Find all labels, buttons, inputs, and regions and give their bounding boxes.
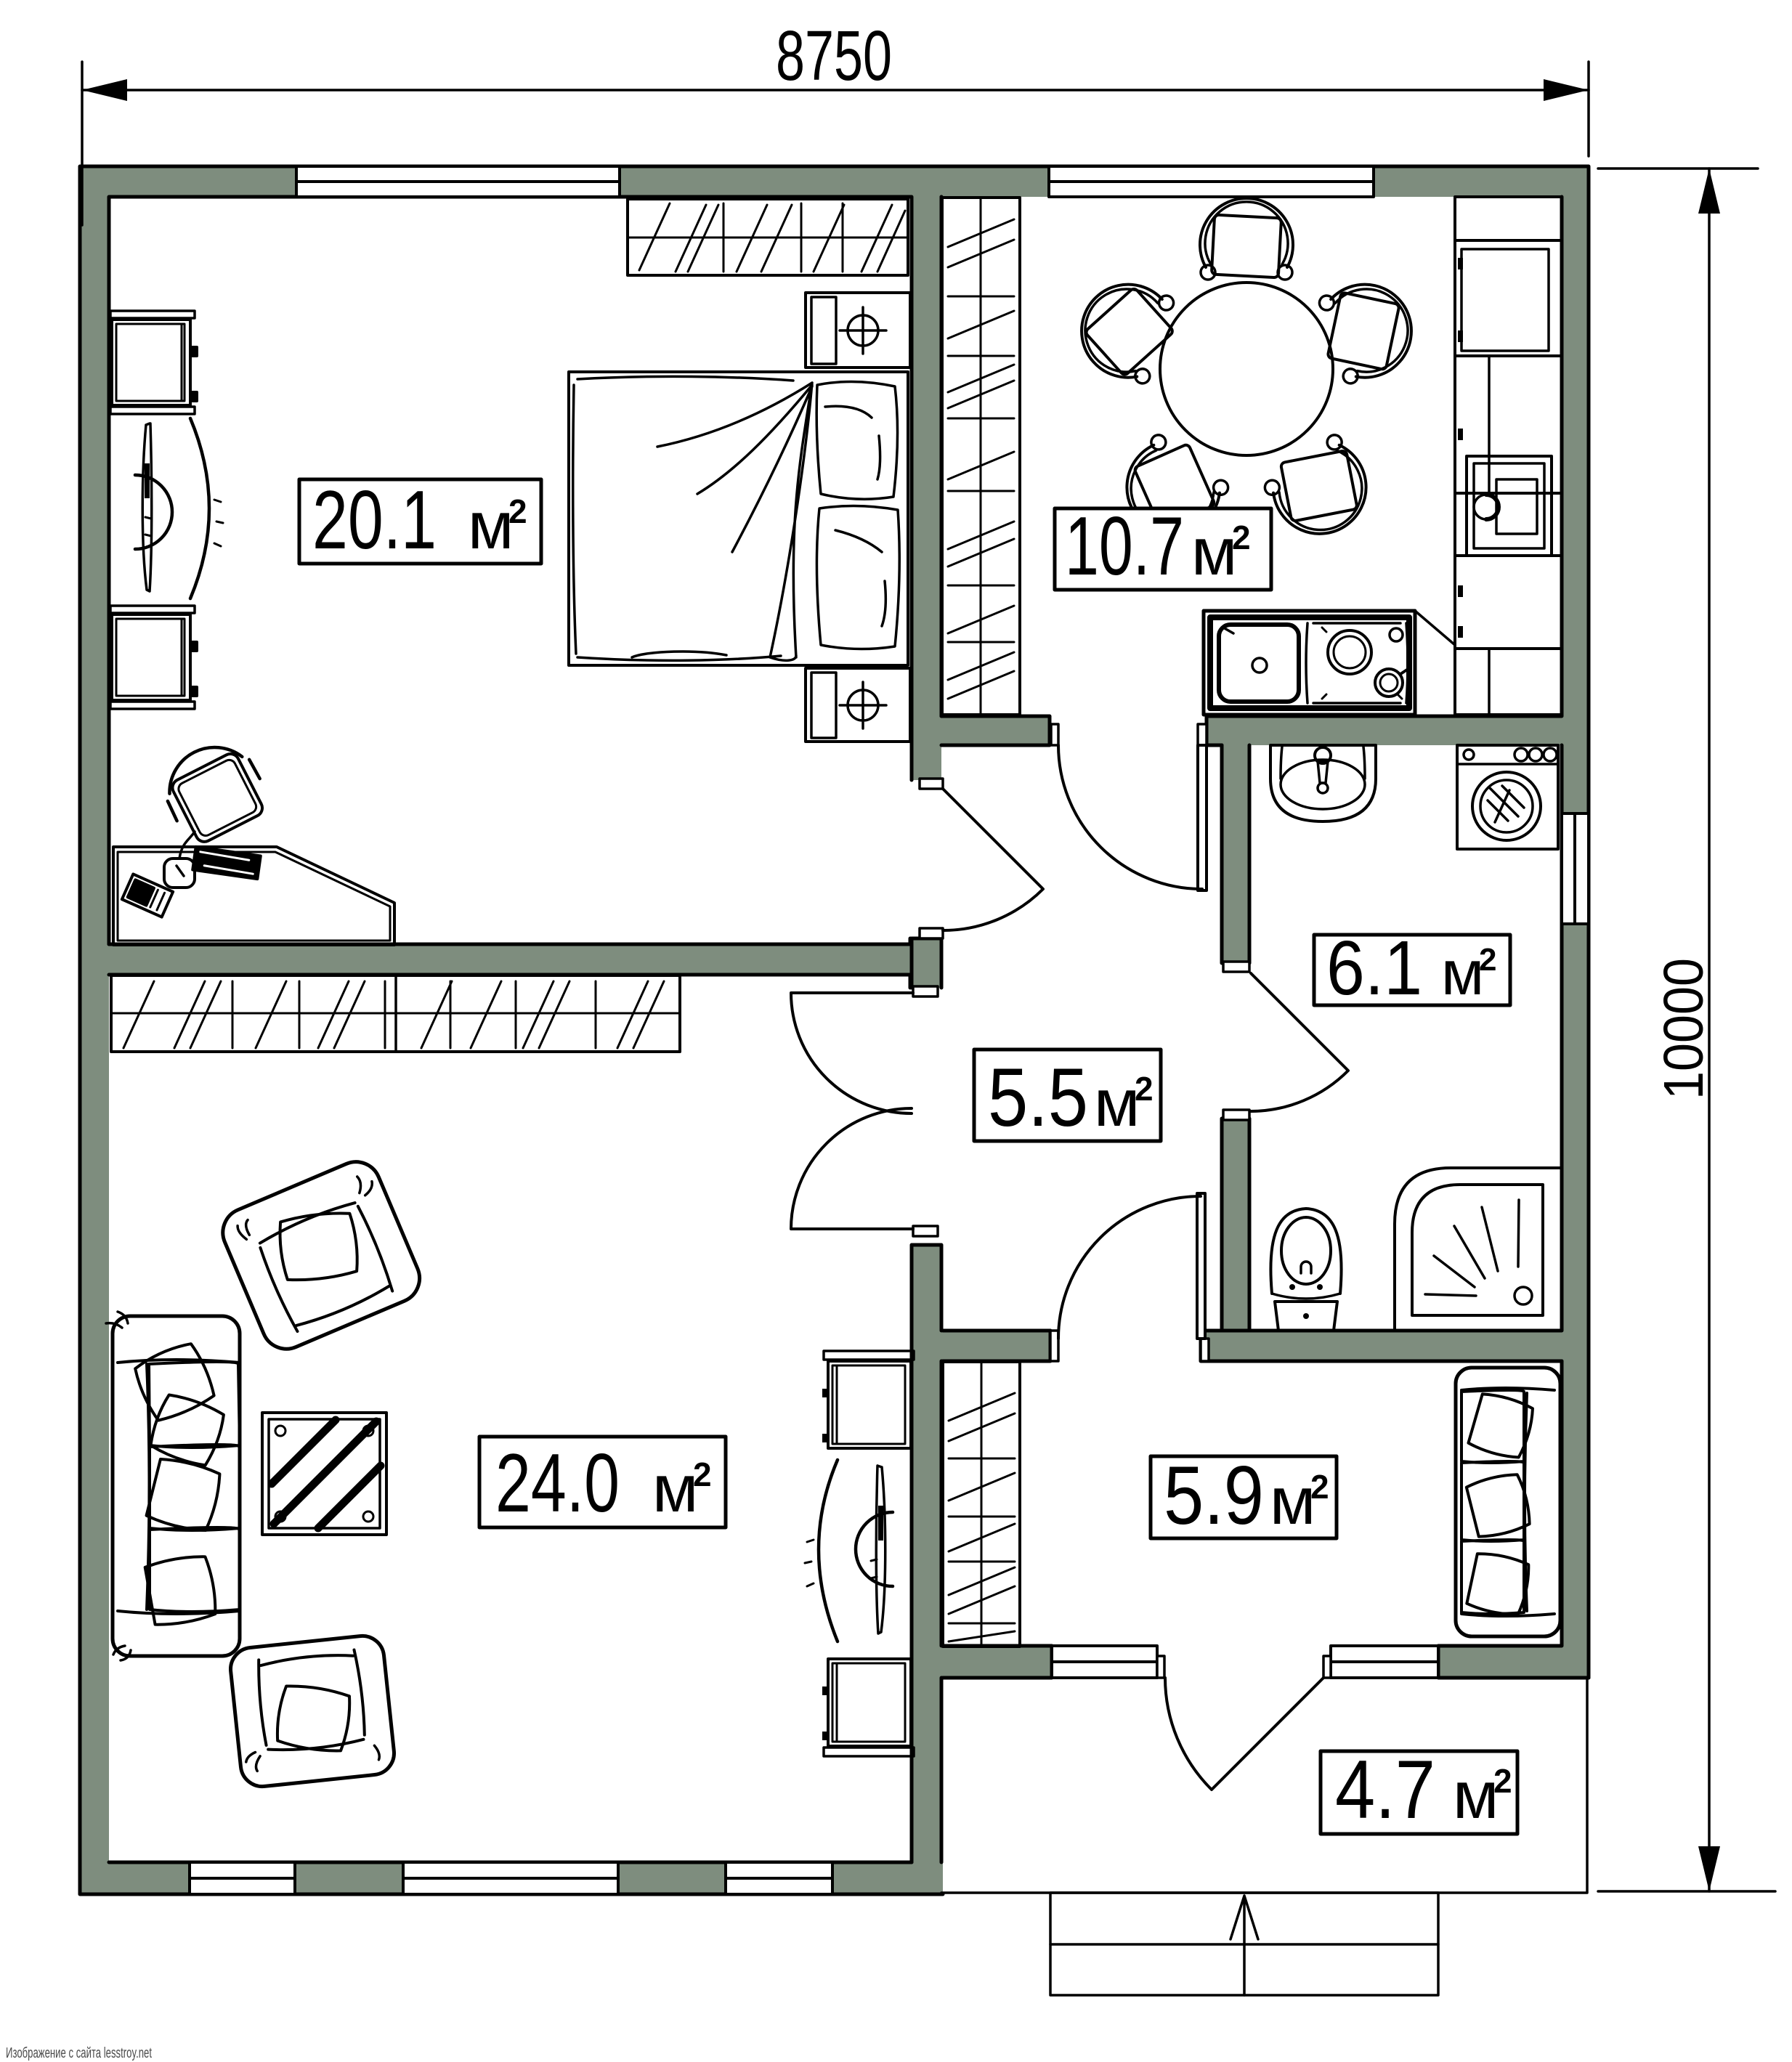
svg-text:м: м — [1453, 1758, 1499, 1832]
svg-text:4.7: 4.7 — [1335, 1744, 1435, 1836]
svg-text:м: м — [1094, 1066, 1140, 1140]
svg-text:м: м — [468, 489, 514, 563]
svg-text:Изображение с сайта lesstroy.n: Изображение с сайта lesstroy.net — [6, 2045, 152, 2061]
svg-text:5.5: 5.5 — [988, 1052, 1088, 1144]
svg-text:20.1: 20.1 — [312, 474, 437, 567]
svg-text:24.0: 24.0 — [495, 1437, 620, 1530]
svg-text:6.1: 6.1 — [1326, 925, 1422, 1011]
svg-text:10000: 10000 — [1653, 958, 1715, 1100]
svg-text:10.7: 10.7 — [1065, 500, 1184, 593]
svg-text:м: м — [1191, 515, 1237, 589]
svg-text:м: м — [1270, 1464, 1315, 1538]
svg-text:2: 2 — [1310, 1468, 1329, 1506]
svg-text:5.9: 5.9 — [1164, 1450, 1264, 1542]
svg-text:2: 2 — [1493, 1762, 1512, 1800]
svg-text:м: м — [652, 1452, 698, 1526]
svg-text:2: 2 — [1135, 1070, 1154, 1108]
svg-text:2: 2 — [693, 1456, 712, 1493]
svg-text:8750: 8750 — [776, 16, 892, 95]
svg-text:м: м — [1441, 938, 1484, 1008]
svg-text:2: 2 — [1232, 519, 1251, 556]
svg-text:2: 2 — [1479, 942, 1496, 978]
svg-text:2: 2 — [508, 492, 527, 530]
